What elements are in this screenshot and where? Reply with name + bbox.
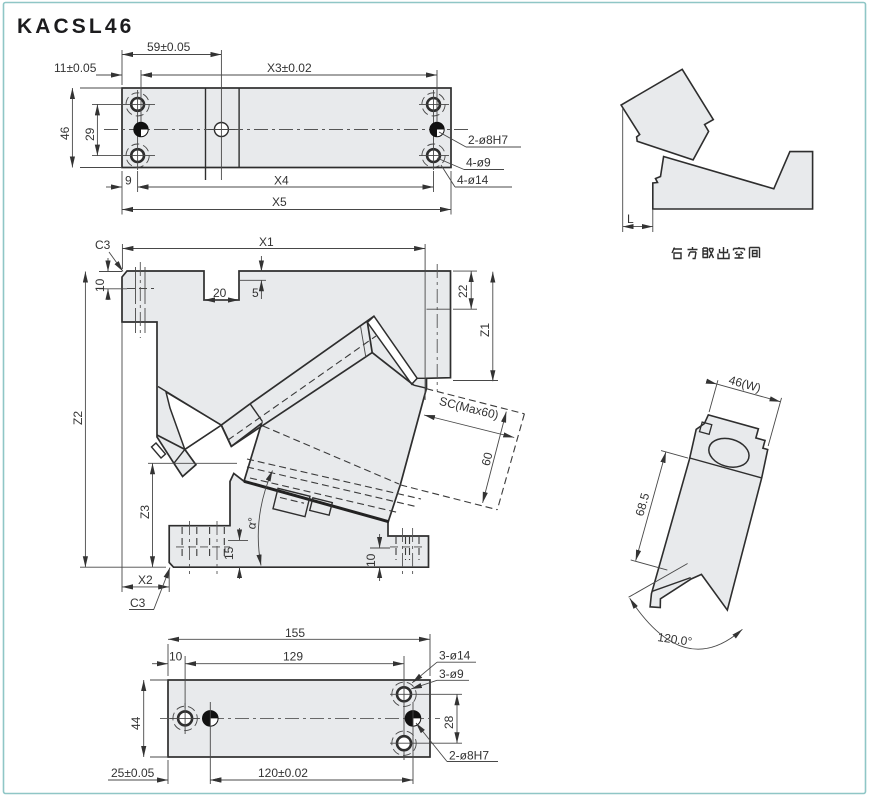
svg-text:X5: X5 [272,195,287,209]
svg-text:15: 15 [222,546,236,560]
svg-text:3-ø9: 3-ø9 [439,667,464,681]
svg-text:5: 5 [252,286,259,300]
svg-text:2-ø8H7: 2-ø8H7 [449,749,489,763]
svg-text:10: 10 [364,553,378,567]
svg-text:KACSL46: KACSL46 [17,15,134,38]
svg-text:10: 10 [169,650,183,664]
svg-text:X3±0.02: X3±0.02 [267,61,312,75]
svg-text:44: 44 [129,716,143,730]
svg-text:129: 129 [283,650,303,664]
svg-text:11±0.05: 11±0.05 [54,61,97,75]
svg-text:68.5: 68.5 [633,491,653,518]
svg-text:46: 46 [58,126,72,140]
svg-text:25±0.05: 25±0.05 [111,766,155,780]
svg-text:29: 29 [83,127,97,141]
svg-text:59±0.05: 59±0.05 [147,40,191,54]
svg-text:4-ø14: 4-ø14 [457,173,489,187]
svg-text:22: 22 [456,284,470,298]
svg-text:120±0.02: 120±0.02 [258,766,308,780]
svg-text:3-ø14: 3-ø14 [439,649,471,663]
svg-text:SC(Max60): SC(Max60) [438,394,500,422]
svg-text:L: L [627,212,634,226]
svg-text:Z1: Z1 [478,323,492,337]
svg-text:X2: X2 [138,573,153,587]
svg-text:C3: C3 [95,238,111,252]
svg-text:Z2: Z2 [71,411,85,425]
svg-text:60: 60 [479,451,496,468]
svg-text:X4: X4 [274,174,289,188]
svg-text:10: 10 [93,278,107,292]
svg-text:Z3: Z3 [138,505,152,519]
svg-text:28: 28 [442,715,456,729]
svg-text:9: 9 [125,174,132,188]
svg-text:20: 20 [213,286,227,300]
svg-text:120.0°: 120.0° [657,630,694,649]
svg-text:X1: X1 [259,235,274,249]
svg-text:2-ø8H7: 2-ø8H7 [468,133,508,147]
svg-text:C3: C3 [130,596,146,610]
svg-text:4-ø9: 4-ø9 [466,156,491,170]
svg-text:155: 155 [285,626,305,640]
